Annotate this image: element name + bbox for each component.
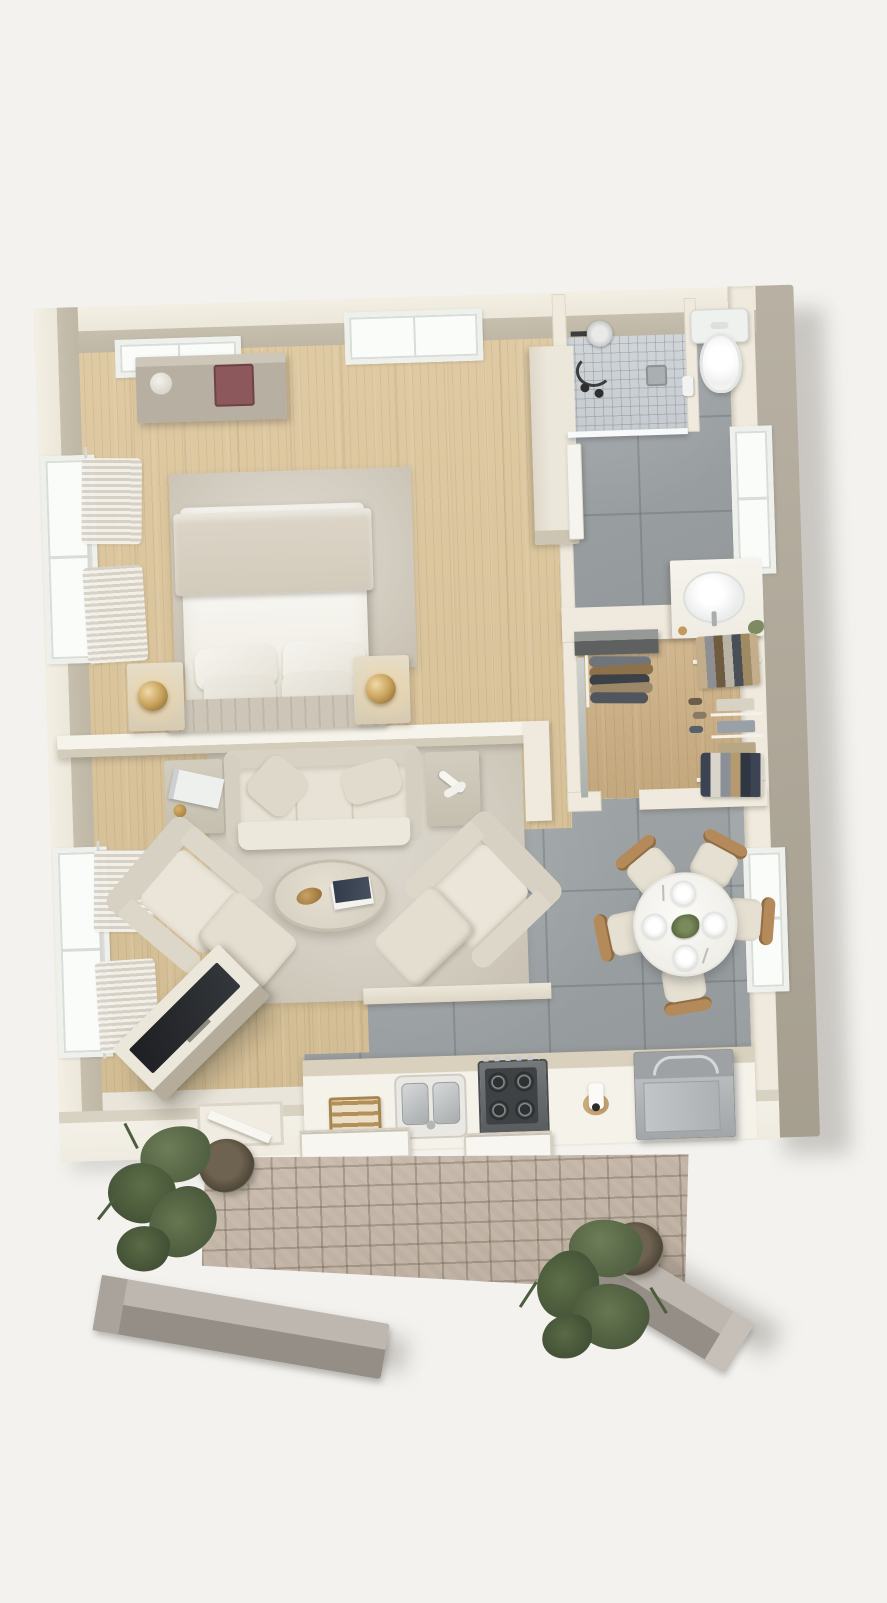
closet-folded-pile-2	[717, 720, 755, 733]
wall-divider-stub	[523, 721, 552, 822]
red-keepsake-box	[213, 364, 254, 407]
shower-drain	[646, 365, 668, 387]
shrub-upper-sprig-2	[124, 1123, 139, 1149]
shrub-lower-clump-4	[541, 1314, 592, 1360]
sink-basin-left	[401, 1083, 429, 1126]
beam-left	[93, 1275, 390, 1379]
white-vase	[150, 372, 173, 395]
bathroom-door-leaf	[566, 443, 584, 539]
top-wall-window	[344, 308, 484, 364]
closet-lower-clothes	[701, 753, 763, 797]
appliance-front-panel	[643, 1080, 721, 1132]
floor-plan-scene	[0, 0, 887, 1603]
shrub-lower-sprig-1	[519, 1281, 538, 1308]
hob-knobs	[483, 1055, 539, 1062]
closet-folded-pile-1	[716, 698, 754, 711]
beam-left-endcap	[93, 1275, 128, 1335]
toilet-paper-holder	[682, 376, 694, 396]
bedroom-curtain-bottom	[82, 564, 148, 664]
shrub-lower-sprig-2	[649, 1287, 667, 1314]
sink-faucet	[426, 1120, 435, 1129]
bedroom-window-mullion	[48, 555, 92, 559]
page: { "meta": { "title": "Top-down 3D floor …	[0, 0, 887, 1590]
toilet-flush-button	[710, 322, 728, 330]
bathroom-window-mullion	[737, 497, 769, 501]
vanity-faucet	[711, 611, 716, 626]
bathroom-window	[730, 425, 777, 574]
bed-throw-blanket	[173, 508, 373, 596]
appliance-handle-arc	[652, 1054, 719, 1075]
sink-basin-right	[432, 1082, 460, 1125]
sliding-track-1	[300, 1127, 411, 1160]
sofa-front-edge	[238, 817, 411, 850]
closet-shoe-1	[688, 698, 702, 705]
sofa	[224, 745, 423, 851]
shrub-upper	[99, 1118, 264, 1283]
bedroom-wall-cabinet	[135, 353, 287, 424]
top-window-mullion	[413, 316, 416, 358]
closet-dresser	[574, 629, 659, 656]
stainless-appliance	[633, 1049, 736, 1140]
shrub-lower	[514, 1215, 689, 1370]
closet-shoe-3	[689, 726, 703, 733]
bedroom-curtain-top	[82, 458, 142, 544]
gas-hob	[477, 1059, 549, 1137]
closet-hanging-5	[590, 692, 648, 703]
living-window-mullion	[61, 948, 105, 952]
closet-upper-clothes	[695, 633, 760, 689]
closet-shoe-2	[693, 712, 707, 719]
